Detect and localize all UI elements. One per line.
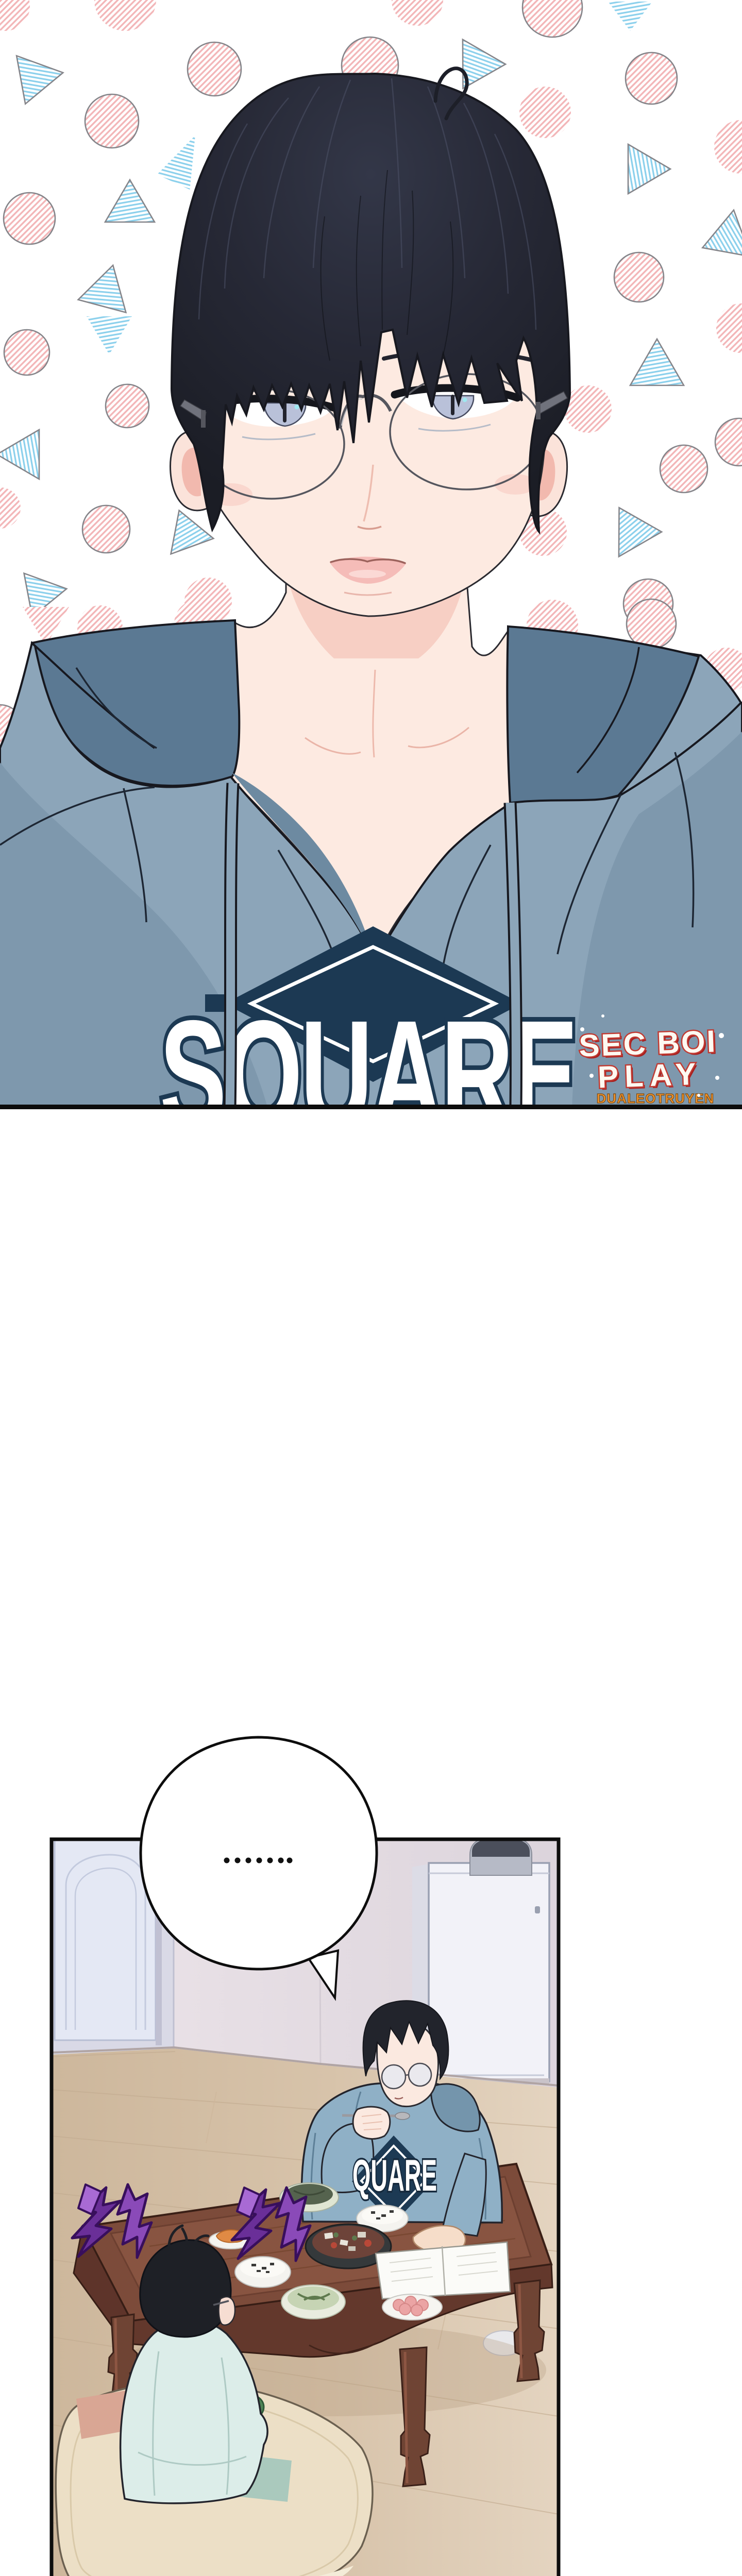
- svg-text:QUARE: QUARE: [352, 2151, 437, 2200]
- svg-text:DUALEOTRUYEN: DUALEOTRUYEN: [597, 1091, 715, 1106]
- svg-text:PLAY: PLAY: [597, 1056, 703, 1094]
